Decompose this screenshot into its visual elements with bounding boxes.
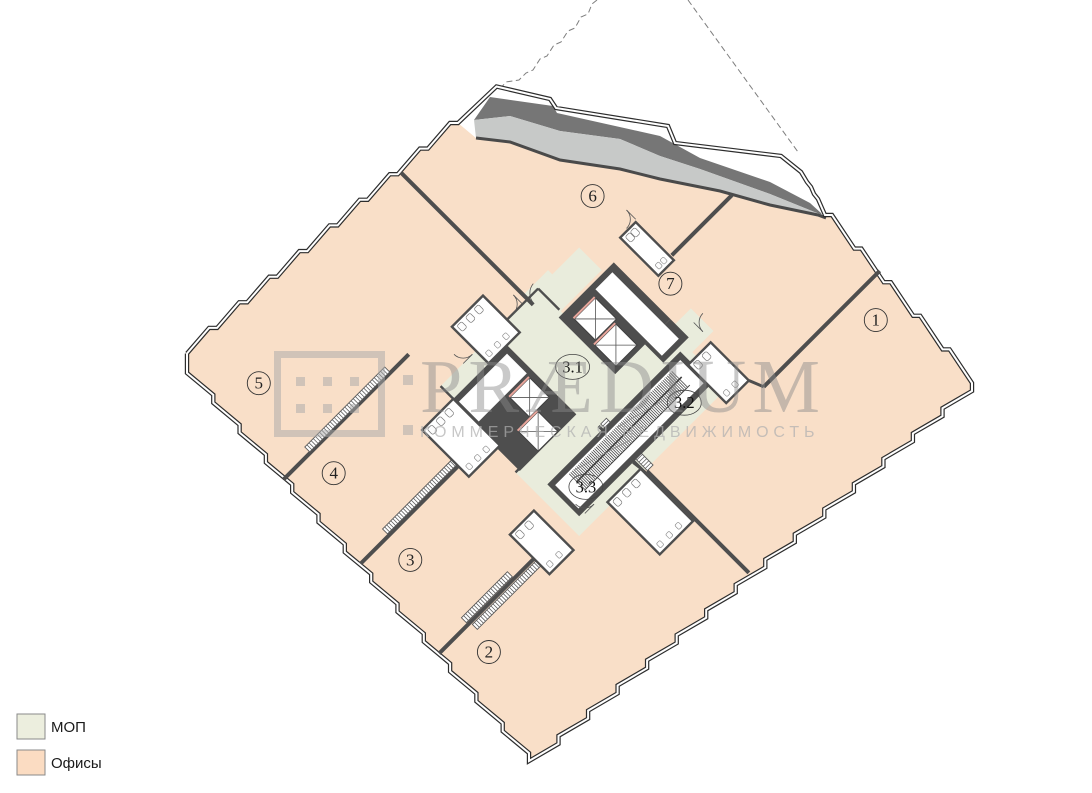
svg-text:5: 5 bbox=[255, 374, 264, 393]
svg-text:2: 2 bbox=[485, 643, 494, 662]
svg-text:КОММЕРЧЕСКАЯ НЕДВИЖИМОСТЬ: КОММЕРЧЕСКАЯ НЕДВИЖИМОСТЬ bbox=[420, 424, 820, 441]
svg-text:1: 1 bbox=[872, 311, 881, 330]
svg-text:3.3: 3.3 bbox=[576, 477, 597, 496]
svg-text:PRÆDIUM: PRÆDIUM bbox=[420, 345, 820, 429]
svg-text:7: 7 bbox=[666, 274, 675, 293]
svg-text:4: 4 bbox=[329, 464, 338, 483]
svg-text:6: 6 bbox=[588, 187, 597, 206]
svg-text:3: 3 bbox=[406, 550, 415, 569]
svg-text:МОП: МОП bbox=[51, 719, 86, 736]
svg-text:Офисы: Офисы bbox=[51, 755, 102, 772]
